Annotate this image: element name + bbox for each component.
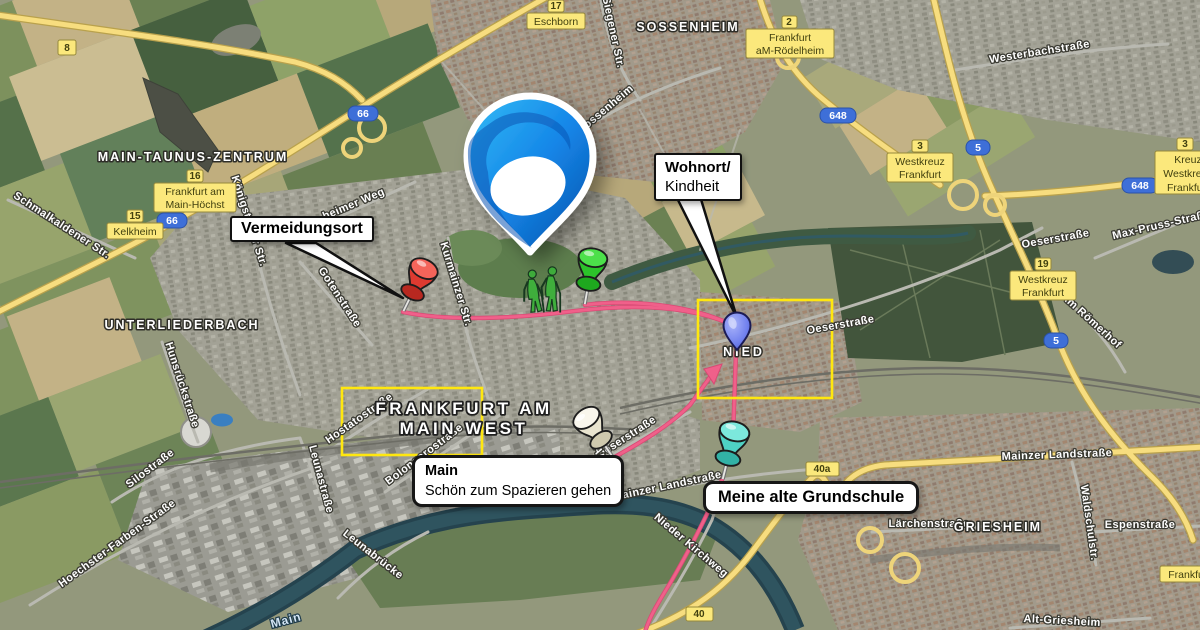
callout-wohnort-line2: Kindheit bbox=[665, 177, 731, 196]
callout-wohnort-line1: Wohnort/ bbox=[665, 158, 731, 177]
svg-text:648: 648 bbox=[829, 110, 847, 122]
svg-text:5: 5 bbox=[975, 142, 981, 154]
svg-text:15: 15 bbox=[129, 211, 141, 222]
svg-text:17: 17 bbox=[550, 1, 562, 12]
svg-text:648: 648 bbox=[1131, 180, 1149, 192]
svg-text:Kreuz: Kreuz bbox=[1174, 154, 1200, 166]
shield-b8: 8 bbox=[58, 40, 76, 55]
callout-wohnort-kindheit[interactable]: Wohnort/ Kindheit bbox=[654, 153, 742, 201]
shield-a5-north: 5 bbox=[966, 140, 990, 155]
shield-a66-northwest: 66 bbox=[348, 106, 378, 121]
svg-text:19: 19 bbox=[1037, 259, 1049, 270]
svg-text:Westkreuz: Westkreuz bbox=[1018, 274, 1067, 286]
svg-text:40a: 40a bbox=[814, 464, 831, 475]
svg-text:3: 3 bbox=[917, 141, 923, 152]
place-label-griesheim: GRIESHEIM bbox=[954, 520, 1042, 534]
exit-frankfurt-clipped: Frankfurt- bbox=[1160, 566, 1200, 582]
svg-text:Eschborn: Eschborn bbox=[534, 16, 579, 28]
svg-text:Frankfurt: Frankfurt bbox=[899, 169, 941, 181]
svg-text:3: 3 bbox=[1182, 139, 1188, 150]
satellite-map: Schmalkaldener Str. Königsteiner Str. he… bbox=[0, 0, 1200, 630]
place-label-sossenheim: SOSSENHEIM bbox=[636, 20, 739, 34]
svg-text:Westkreuz: Westkreuz bbox=[895, 156, 944, 168]
svg-text:40: 40 bbox=[693, 609, 705, 620]
svg-text:16: 16 bbox=[189, 171, 201, 182]
place-label-main-west: MAIN WEST bbox=[400, 419, 529, 438]
svg-text:Main-Höchst: Main-Höchst bbox=[166, 199, 225, 211]
svg-text:Frankfurt: Frankfurt bbox=[769, 32, 811, 44]
callout-grundschule[interactable]: Meine alte Grundschule bbox=[703, 481, 919, 514]
callout-main-river[interactable]: Main Schön zum Spazieren gehen bbox=[412, 455, 624, 507]
svg-text:5: 5 bbox=[1053, 335, 1059, 347]
place-label-unterliederbach: UNTERLIEDERBACH bbox=[105, 318, 260, 332]
shield-a648-east: 648 bbox=[1122, 178, 1158, 193]
svg-text:66: 66 bbox=[166, 215, 178, 227]
callout-grundschule-text: Meine alte Grundschule bbox=[718, 488, 904, 507]
shield-b40a: 40a bbox=[806, 462, 839, 476]
place-label-nied: NIED bbox=[723, 345, 765, 359]
callout-vermeidungsort[interactable]: Vermeidungsort bbox=[230, 216, 374, 242]
shield-a5-south: 5 bbox=[1044, 333, 1068, 348]
place-label-main-taunus-zentrum: MAIN-TAUNUS-ZENTRUM bbox=[98, 150, 289, 164]
svg-text:8: 8 bbox=[64, 43, 70, 54]
callout-main-title: Main bbox=[425, 461, 611, 481]
svg-text:Frankfurt-: Frankfurt- bbox=[1168, 569, 1200, 581]
svg-text:Frankfurt: Frankfurt bbox=[1167, 182, 1200, 194]
shield-b40: 40 bbox=[686, 607, 713, 621]
svg-text:Frankfurt am: Frankfurt am bbox=[165, 186, 225, 198]
svg-text:Kelkheim: Kelkheim bbox=[113, 226, 156, 238]
svg-text:Frankfurt: Frankfurt bbox=[1022, 287, 1064, 299]
place-label-frankfurt-am: FRANKFURT AM bbox=[375, 399, 552, 418]
shield-a648-west: 648 bbox=[820, 108, 856, 123]
street-label-espenstrasse: Espenstraße bbox=[1105, 519, 1175, 531]
svg-text:66: 66 bbox=[357, 108, 369, 120]
callout-main-subtitle: Schön zum Spazieren gehen bbox=[425, 481, 611, 501]
svg-text:2: 2 bbox=[786, 17, 792, 28]
callout-vermeidungsort-text: Vermeidungsort bbox=[241, 220, 363, 238]
svg-text:aM-Rödelheim: aM-Rödelheim bbox=[756, 45, 825, 57]
svg-text:Westkreuz: Westkreuz bbox=[1163, 168, 1200, 180]
map-canvas[interactable]: Schmalkaldener Str. Königsteiner Str. he… bbox=[0, 0, 1200, 630]
